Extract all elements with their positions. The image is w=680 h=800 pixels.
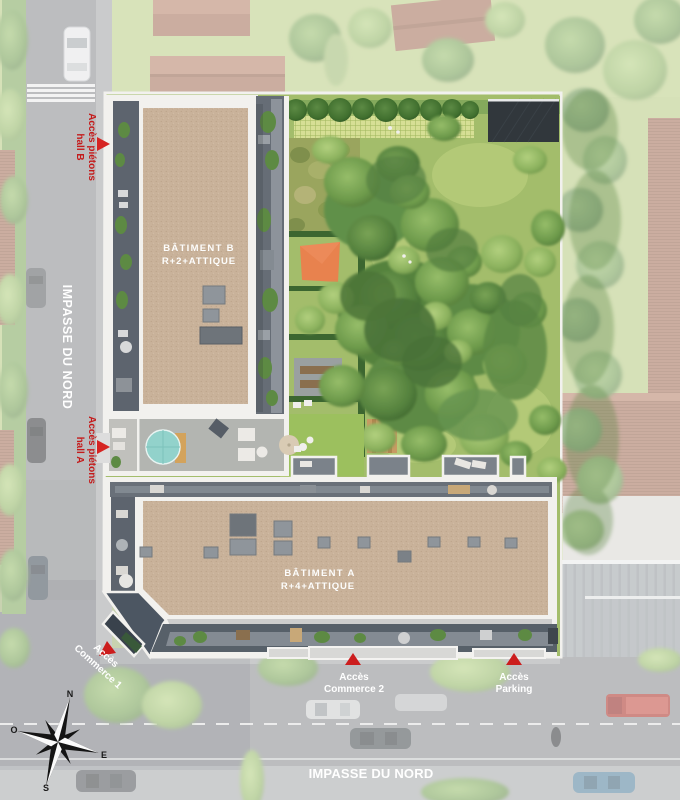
svg-text:E: E — [101, 750, 107, 760]
svg-text:Accès piétons: Accès piétons — [86, 113, 97, 181]
svg-text:BÂTIMENT A: BÂTIMENT A — [284, 567, 355, 579]
svg-text:S: S — [43, 783, 49, 793]
svg-text:Parking: Parking — [496, 684, 533, 695]
svg-text:BÂTIMENT B: BÂTIMENT B — [163, 242, 235, 254]
svg-text:R+2+ATTIQUE: R+2+ATTIQUE — [162, 256, 236, 267]
svg-text:Accès piétons: Accès piétons — [86, 416, 97, 484]
svg-text:Commerce 2: Commerce 2 — [324, 684, 384, 695]
svg-text:N: N — [67, 689, 74, 699]
svg-text:IMPASSE DU NORD: IMPASSE DU NORD — [309, 766, 434, 781]
svg-text:R+4+ATTIQUE: R+4+ATTIQUE — [281, 581, 355, 592]
svg-text:Accès: Accès — [499, 672, 529, 683]
svg-text:Accès: Accès — [339, 672, 369, 683]
svg-text:IMPASSE DU NORD: IMPASSE DU NORD — [60, 285, 74, 410]
svg-text:hall A: hall A — [74, 437, 85, 464]
svg-text:hall B: hall B — [74, 133, 85, 160]
svg-text:O: O — [10, 725, 17, 735]
